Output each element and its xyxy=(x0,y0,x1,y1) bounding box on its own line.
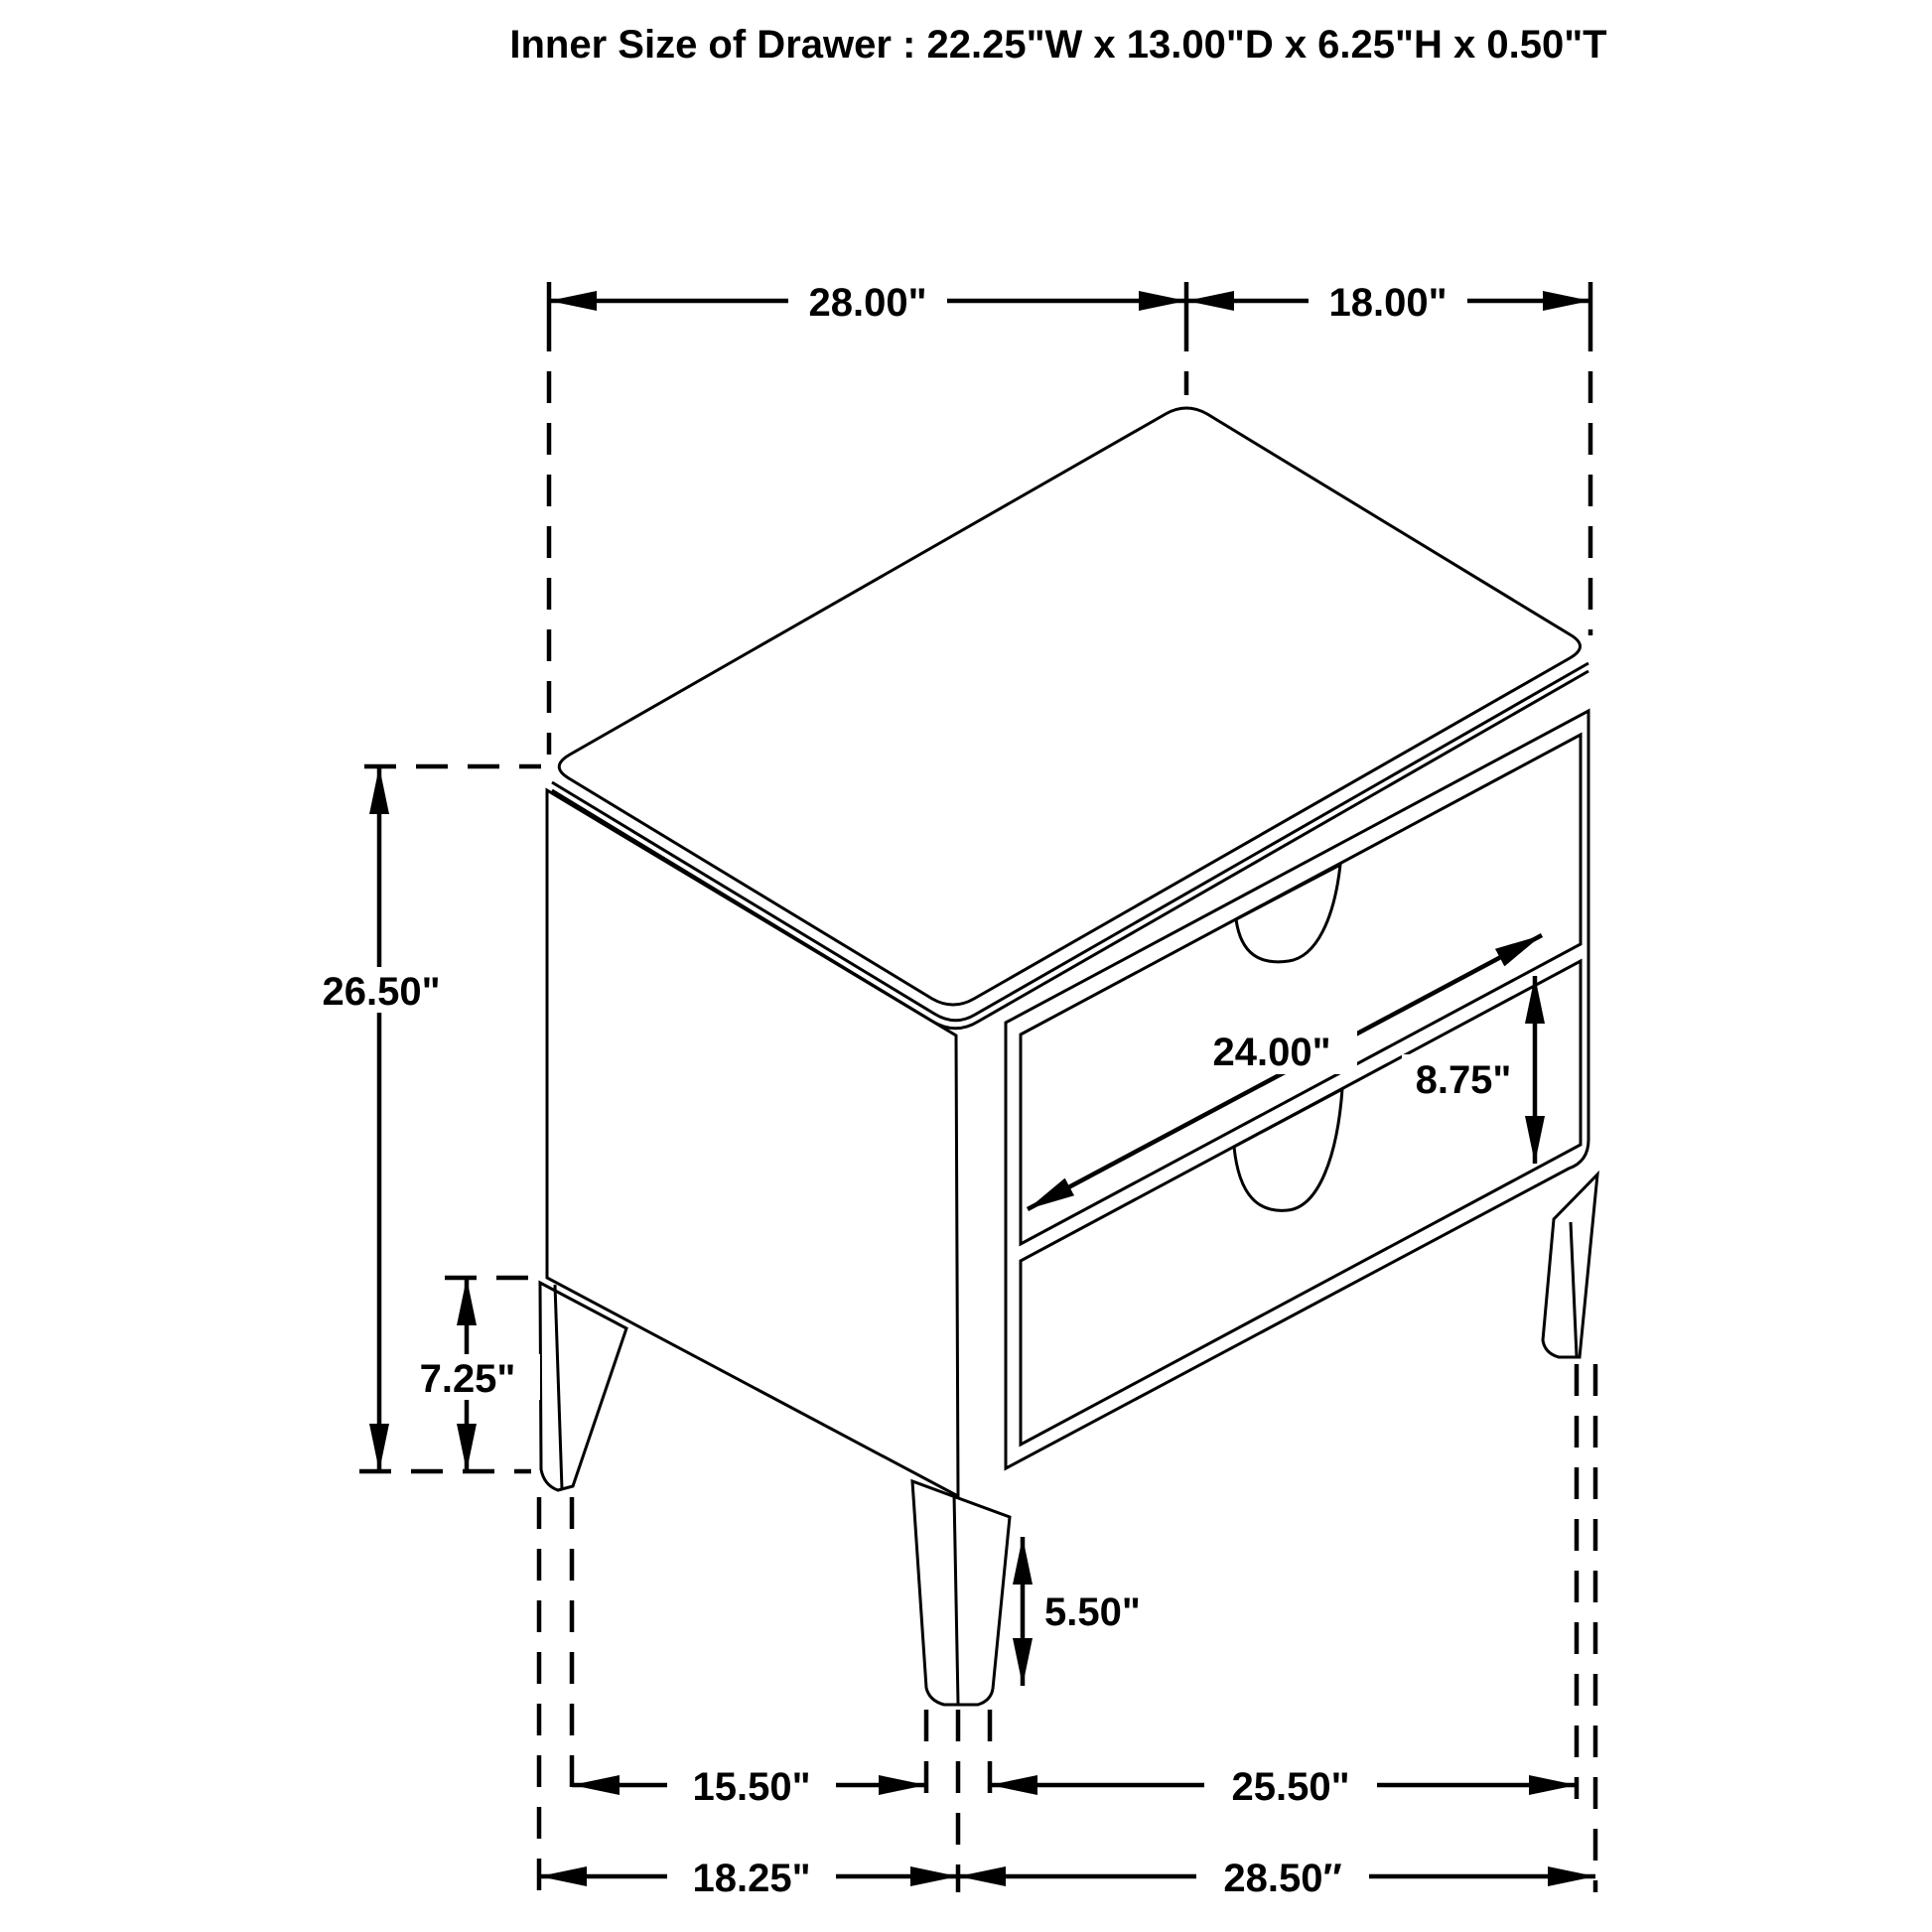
diagram-page: Inner Size of Drawer : 22.25"W x 13.00"D… xyxy=(0,0,1932,1932)
dimension-floor-span-front: 25.50" xyxy=(990,1763,1577,1809)
dim-label-overall-height: 26.50" xyxy=(322,970,440,1014)
dimension-front-leg-height: 5.50" xyxy=(1023,1537,1170,1686)
dim-label-floor-span-front: 25.50" xyxy=(1231,1765,1349,1809)
dim-label-base-width: 28.50″ xyxy=(1223,1857,1341,1900)
nightstand-dimension-diagram: Inner Size of Drawer : 22.25"W x 13.00"D… xyxy=(0,0,1932,1932)
dimension-leg-clearance: 7.25" xyxy=(395,1278,540,1471)
front-center-leg xyxy=(912,1481,1010,1705)
right-leg xyxy=(1543,1174,1597,1357)
dim-label-drawer-height: 8.75" xyxy=(1416,1058,1512,1102)
dim-label-base-depth: 18.25" xyxy=(692,1857,810,1900)
dimension-top-depth: 18.00" xyxy=(1186,279,1590,325)
dim-label-top-depth: 18.00" xyxy=(1328,281,1447,325)
dim-label-leg-clearance: 7.25" xyxy=(420,1357,516,1401)
diagram-title: Inner Size of Drawer : 22.25"W x 13.00"D… xyxy=(509,23,1606,67)
dim-label-floor-span-side: 15.50" xyxy=(692,1765,810,1809)
dimension-base-width: 28.50″ xyxy=(958,1855,1595,1900)
dim-label-front-leg-height: 5.50" xyxy=(1044,1590,1141,1634)
dim-label-drawer-width: 24.00" xyxy=(1212,1031,1330,1074)
dimension-base-depth: 18.25" xyxy=(539,1855,958,1900)
dim-label-top-width: 28.00" xyxy=(808,281,926,325)
dimension-floor-span-side: 15.50" xyxy=(572,1763,926,1809)
